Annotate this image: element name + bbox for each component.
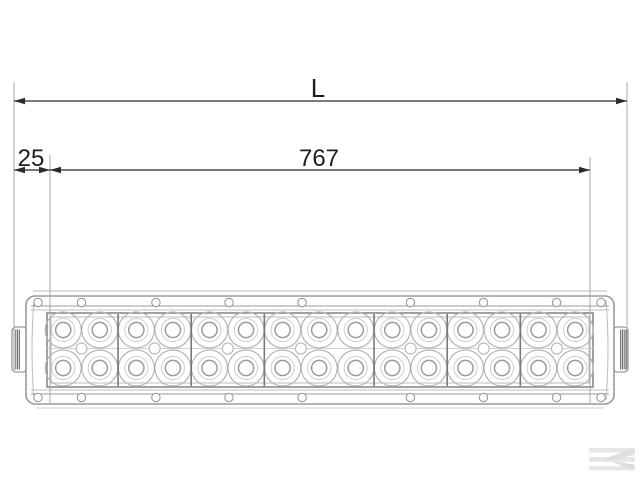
flange-screw [152, 393, 160, 401]
flange-screw [34, 393, 42, 401]
lens-screw [405, 343, 416, 354]
lens-screw [76, 343, 87, 354]
dimension-label-767: 767 [299, 145, 339, 172]
lens-screw [222, 343, 233, 354]
arrowhead-right [616, 98, 627, 104]
dimension-label-L: L [311, 73, 325, 103]
flange-screw [552, 298, 560, 306]
side-bolt-right [613, 327, 628, 372]
technical-drawing-page: L 25 767 [0, 0, 640, 480]
flange-screw [552, 393, 560, 401]
dimension-label-25: 25 [18, 145, 45, 172]
flange-screw [597, 393, 605, 401]
flange-screw [406, 298, 414, 306]
flange-screw [597, 298, 605, 306]
arrowhead-right [579, 167, 590, 173]
flange-screw [225, 393, 233, 401]
flange-screw [225, 298, 233, 306]
lens-screw [149, 343, 160, 354]
arrowhead-left [14, 98, 25, 104]
lens-screw [295, 343, 306, 354]
lens-screw [551, 343, 562, 354]
flange-screw [479, 393, 487, 401]
light-bar [12, 291, 628, 408]
kramp-logo-icon [589, 448, 635, 471]
flange-screw [298, 393, 306, 401]
flange-screw [406, 393, 414, 401]
flange-screw [298, 298, 306, 306]
led-light-bar-drawing: L 25 767 [0, 0, 640, 480]
flange-screw [77, 393, 85, 401]
flange-screw [479, 298, 487, 306]
flange-screw [77, 298, 85, 306]
lens-screw [478, 343, 489, 354]
flange-screw [34, 298, 42, 306]
arrowhead-left [50, 167, 61, 173]
flange-screw [152, 298, 160, 306]
